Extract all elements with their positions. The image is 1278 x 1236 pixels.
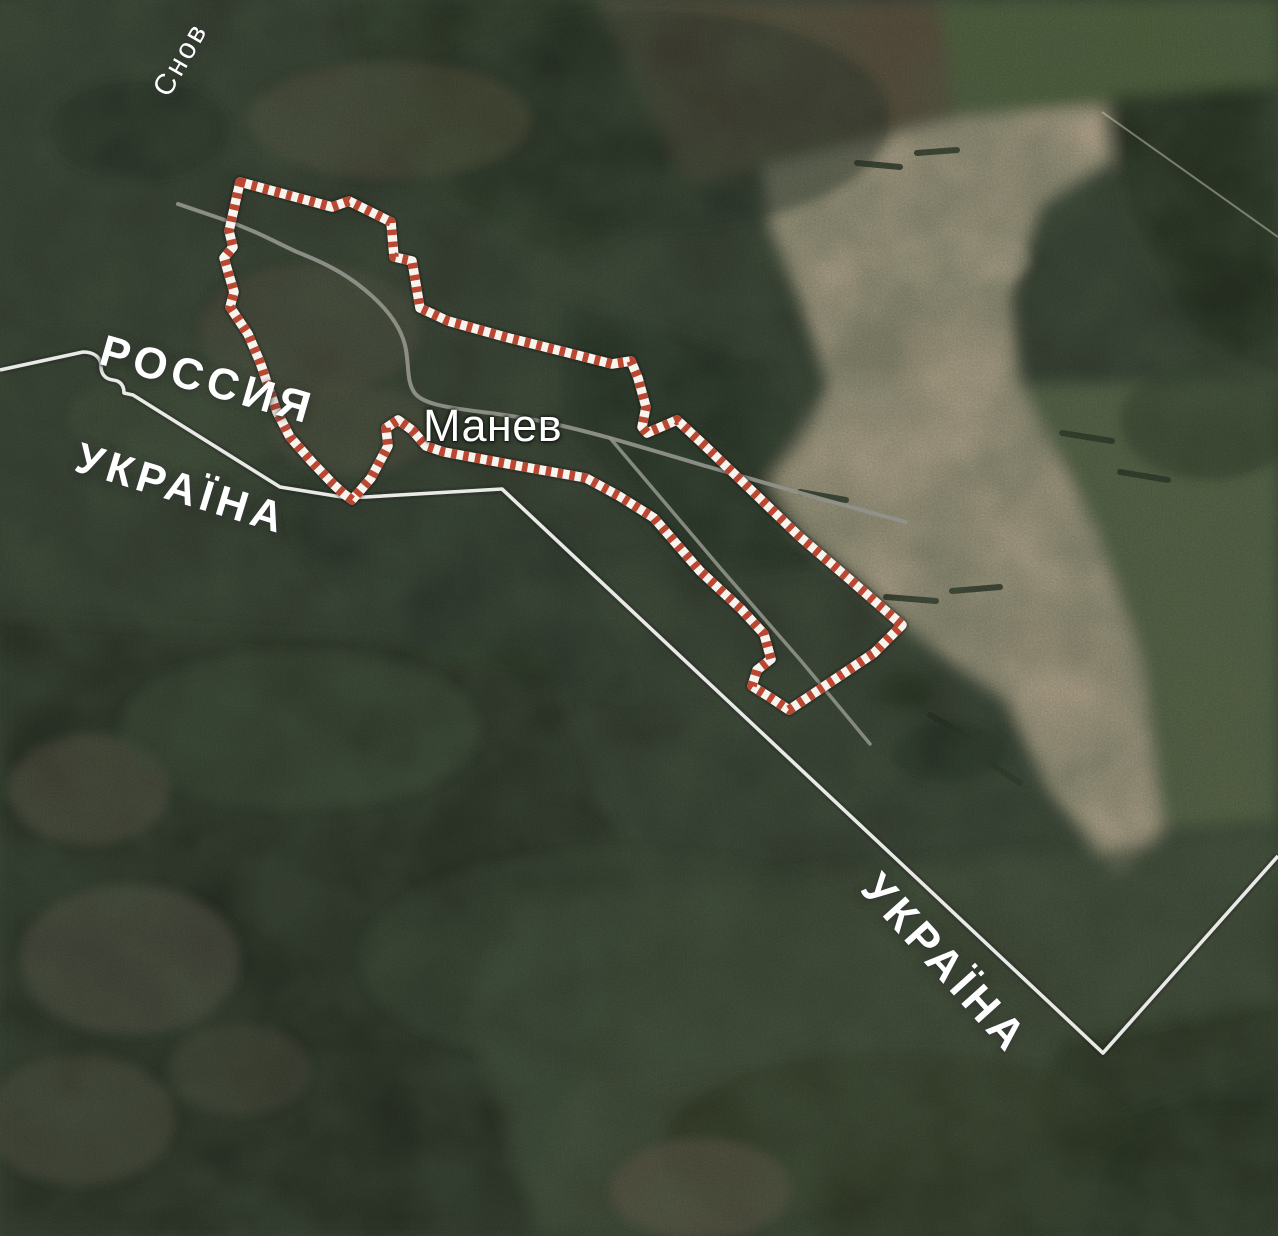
satellite-imagery xyxy=(0,0,1278,1236)
map-canvas[interactable]: Снов РОССИЯ УКРАЇНА УКРАЇНА Манев xyxy=(0,0,1278,1236)
settlement-label[interactable]: Манев xyxy=(423,400,562,452)
